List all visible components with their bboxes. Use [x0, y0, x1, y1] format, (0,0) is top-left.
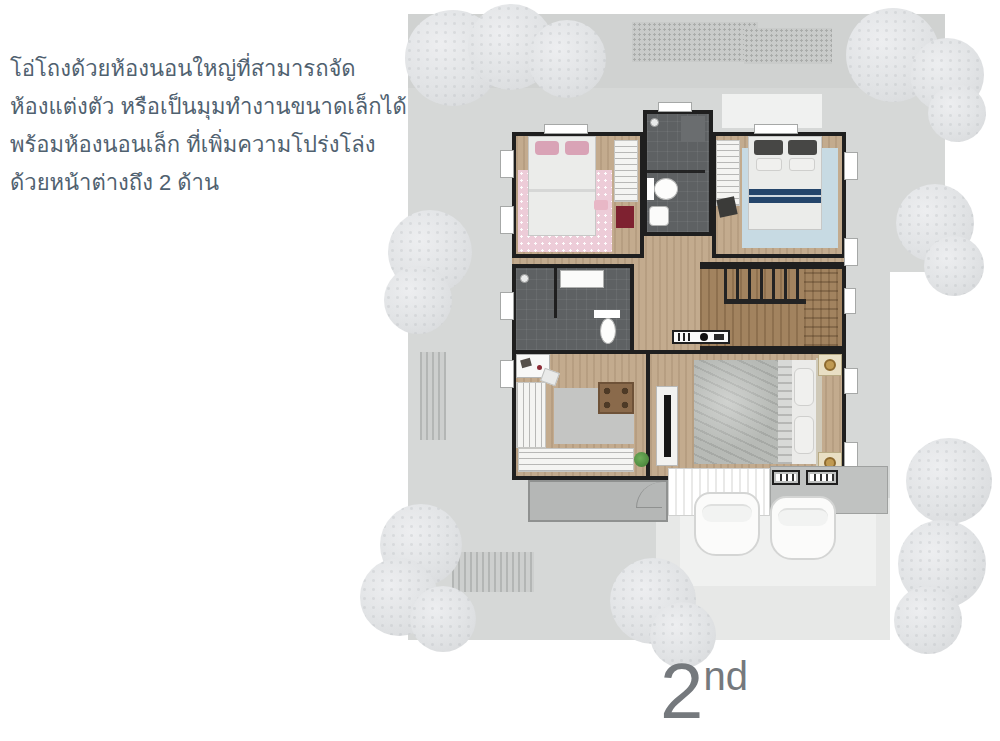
stair-treads — [804, 269, 838, 346]
description-line-4: ด้วยหน้าต่างถึง 2 ด้าน — [10, 164, 430, 202]
shower-head-icon — [650, 118, 659, 127]
car-roof — [770, 496, 836, 560]
partition-wall — [647, 170, 705, 173]
bed-pink-room — [528, 136, 596, 236]
window — [844, 152, 858, 180]
tree — [924, 236, 984, 296]
pillow — [756, 158, 782, 171]
car-windshield — [778, 508, 828, 526]
desk-item — [520, 358, 532, 368]
equipment-box — [714, 334, 724, 340]
wardrobe — [614, 140, 638, 202]
mattress-head — [792, 360, 816, 464]
pink-mat — [594, 200, 608, 210]
nightstand — [818, 354, 842, 376]
description-line-3: พร้อมห้องนอนเล็ก ที่เพิ่มความโปร่งโล่ง — [10, 126, 430, 164]
pillow — [789, 158, 815, 171]
stair-door — [844, 288, 856, 314]
tv-console — [656, 386, 678, 466]
floor-number: 2 — [660, 652, 703, 730]
window — [658, 102, 692, 112]
toilet-tank — [594, 310, 620, 318]
tv-screen — [664, 395, 671, 457]
window — [500, 360, 514, 388]
equipment-dashes — [678, 333, 692, 341]
window — [844, 238, 858, 266]
desk-item-red — [537, 365, 542, 370]
pillow — [794, 368, 814, 406]
paving-texture — [452, 552, 534, 592]
bedroom-pink — [512, 132, 644, 258]
tree — [906, 438, 992, 524]
window — [544, 124, 588, 134]
wardrobe — [716, 140, 740, 206]
hedge-strip — [744, 28, 832, 64]
pillow — [794, 416, 814, 454]
hall-console — [672, 330, 730, 344]
window — [500, 292, 514, 320]
shower-tray — [681, 116, 705, 142]
vent-window — [806, 470, 838, 485]
toilet-bowl — [654, 178, 678, 200]
shower-head-icon — [520, 274, 529, 283]
chair-dark — [716, 196, 737, 217]
description-line-1: โอ่โถงด้วยห้องนอนใหญ่ที่สามารถจัด — [10, 50, 430, 88]
stair-balusters — [724, 269, 804, 301]
partition-wall — [554, 268, 557, 318]
sink-counter — [560, 270, 604, 288]
wardrobe-bottom — [518, 448, 634, 472]
bathroom-top — [643, 110, 713, 236]
bathroom-middle — [512, 264, 634, 354]
window — [844, 368, 858, 394]
ottoman-table — [598, 382, 634, 414]
hedge-strip — [632, 22, 758, 62]
tree — [410, 586, 476, 652]
vent-window — [772, 470, 800, 485]
tree — [894, 586, 962, 654]
pillow — [565, 141, 589, 155]
lamp-icon — [824, 359, 836, 371]
window — [500, 150, 514, 178]
duvet-fold — [529, 189, 595, 192]
master-bed-blanket — [694, 360, 778, 464]
walkway-pad — [722, 94, 822, 128]
floor-label: 2 nd — [660, 652, 800, 730]
window — [844, 442, 858, 468]
floor-suffix: nd — [703, 656, 748, 696]
car-roof — [694, 492, 760, 556]
toilet-bowl — [600, 318, 616, 344]
bedroom-blue — [712, 132, 846, 258]
pillow — [788, 140, 817, 155]
paving-texture — [420, 352, 446, 440]
speaker-icon — [700, 333, 708, 341]
runner-stripe — [749, 195, 821, 197]
window — [754, 124, 798, 134]
car-windshield — [702, 504, 752, 522]
stair-railing — [724, 299, 806, 304]
tree — [928, 84, 986, 142]
floor-plan-page: โอ่โถงด้วยห้องนอนใหญ่ที่สามารถจัด ห้องแต… — [0, 0, 1000, 741]
plant-icon — [634, 452, 649, 467]
dressing-room — [512, 350, 650, 480]
bedroom-master — [646, 350, 846, 480]
wardrobe-left — [516, 382, 546, 448]
window — [500, 206, 514, 234]
sink — [649, 206, 669, 226]
toilet-tank — [647, 178, 654, 200]
bed-blue-room — [748, 136, 822, 230]
tree — [384, 266, 452, 334]
description-line-2: ห้องแต่งตัว หรือเป็นมุมทำงานขนาดเล็กได้ — [10, 88, 430, 126]
description-text: โอ่โถงด้วยห้องนอนใหญ่ที่สามารถจัด ห้องแต… — [10, 50, 430, 202]
pillow — [754, 140, 783, 155]
pillow — [535, 141, 559, 155]
dresser-red — [616, 206, 634, 228]
tree — [528, 20, 606, 98]
duvet-fold — [778, 360, 792, 464]
